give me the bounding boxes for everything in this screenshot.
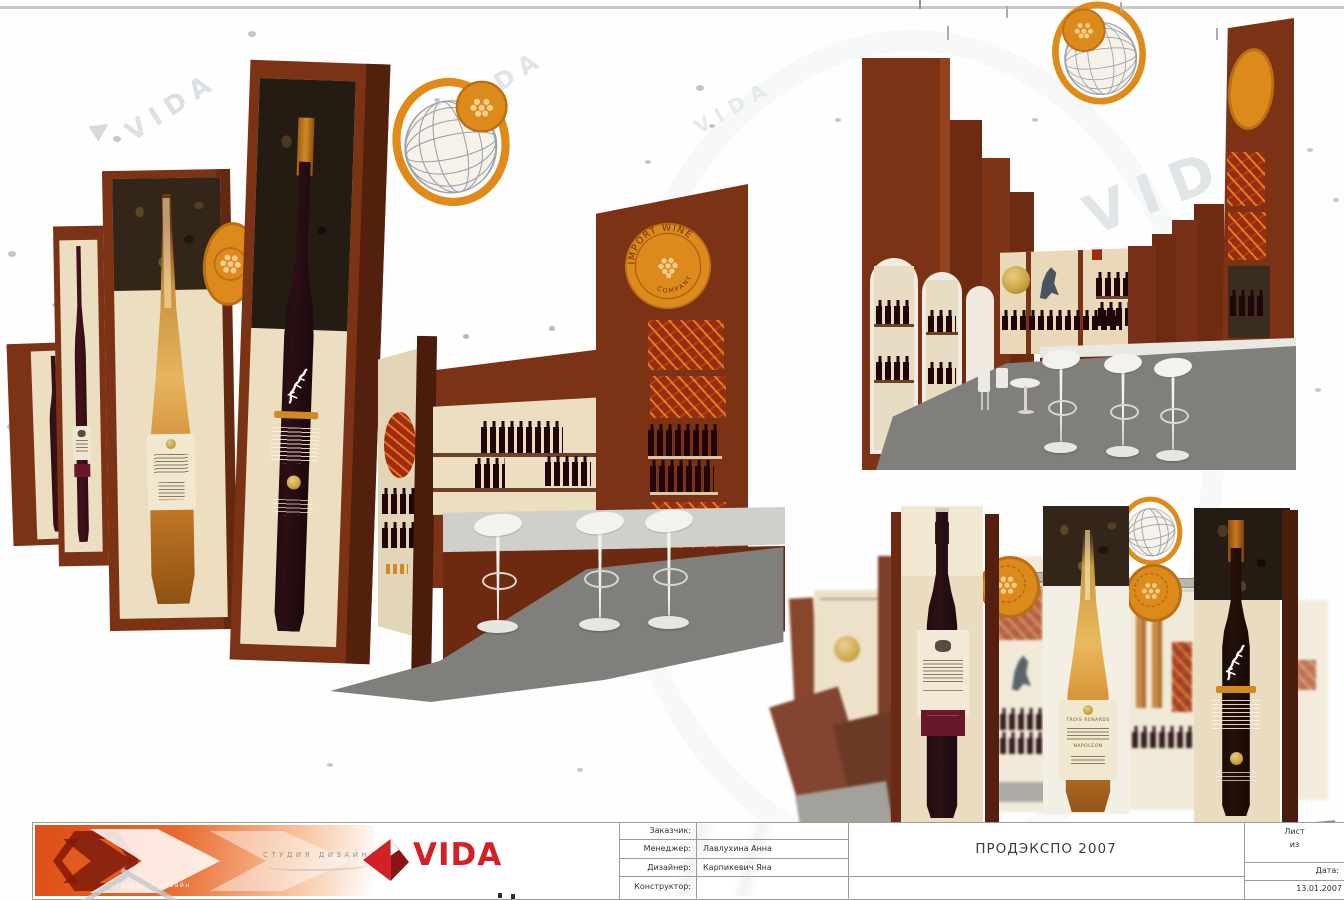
- sheet-label: Лист: [1244, 827, 1344, 836]
- date-label: Дата:: [1244, 866, 1339, 875]
- frame-line: [820, 598, 884, 600]
- label-medallion: [1230, 752, 1243, 765]
- label-text-lines: [1071, 756, 1105, 766]
- bg-floor: [998, 782, 1048, 802]
- label-crest: [1083, 705, 1093, 715]
- field-value-designer: Карпикевич Яна: [703, 863, 843, 872]
- signature-mark: [498, 893, 502, 898]
- watermark-v-mark: [75, 882, 215, 898]
- sheet-of-label: из: [1244, 840, 1344, 849]
- label-rule: [923, 690, 963, 691]
- vida-logo-text: VIDA: [413, 837, 502, 873]
- field-label-designer: Дизайнер:: [621, 863, 691, 872]
- bottle-row: [1132, 732, 1192, 748]
- tower-edge: [1282, 510, 1298, 832]
- label-rule: [927, 715, 959, 716]
- logo-tagline: СТУДИЯ ДИЗАЙНА: [263, 851, 379, 859]
- background-depth-group: [0, 0, 1344, 900]
- label-text-lines: [1216, 772, 1256, 784]
- field-label-customer: Заказчик:: [621, 826, 691, 835]
- bottle-label: [917, 630, 969, 716]
- grid-line: [619, 876, 1244, 877]
- date-value: 13.01.2007: [1244, 884, 1342, 893]
- lizard-emblem-icon: [1222, 644, 1248, 682]
- medallion-graphic: [834, 636, 860, 662]
- bottle-label-secondary: [921, 710, 965, 736]
- bottle-row: [1000, 738, 1046, 754]
- field-label-manager: Менеджер:: [621, 844, 691, 853]
- grape-logo-disc: [1126, 564, 1182, 622]
- label-text-lines: [1212, 700, 1260, 730]
- tower-panel-lizard: [1186, 504, 1298, 834]
- grid-line: [696, 823, 697, 899]
- grid-line: [848, 823, 849, 899]
- signature-mark: [511, 894, 515, 899]
- label-brand-text: NAPOLEON: [1059, 744, 1117, 749]
- bottle-row: [1000, 714, 1046, 730]
- tower-panel-red-wine: [891, 504, 1003, 832]
- title-block-swoosh: [453, 824, 973, 896]
- field-value-manager: Лавлухина Анна: [703, 844, 843, 853]
- grid-line: [1244, 862, 1344, 863]
- project-title: ПРОДЭКСПО 2007: [848, 841, 1244, 857]
- tower-edge: [985, 514, 999, 832]
- figure-graphic: [1008, 652, 1034, 696]
- title-block: выставки и дизайн СТУДИЯ ДИЗАЙНА VIDA За…: [32, 822, 1344, 900]
- label-text-lines: [923, 660, 963, 682]
- label-text-lines: [1067, 728, 1109, 740]
- label-horse-mark: [935, 640, 951, 652]
- render-view-bottle-panels: TROIS RENARDS NAPOLEON: [0, 0, 1344, 900]
- grape-cluster-icon: [1129, 567, 1173, 613]
- grid-line: [619, 839, 848, 840]
- grid-line: [619, 858, 848, 859]
- vida-diamond-logo: [363, 839, 409, 881]
- field-label-constructor: Конструктор:: [615, 882, 691, 891]
- label-brand-text: TROIS RENARDS: [1059, 718, 1117, 723]
- tower-panel-cognac: TROIS RENARDS NAPOLEON: [1043, 504, 1133, 816]
- brand-text-bar: [1216, 686, 1256, 693]
- bottle-label: TROIS RENARDS NAPOLEON: [1059, 700, 1117, 780]
- grid-line: [1244, 880, 1344, 881]
- bottle-neck-highlight: [1085, 530, 1090, 600]
